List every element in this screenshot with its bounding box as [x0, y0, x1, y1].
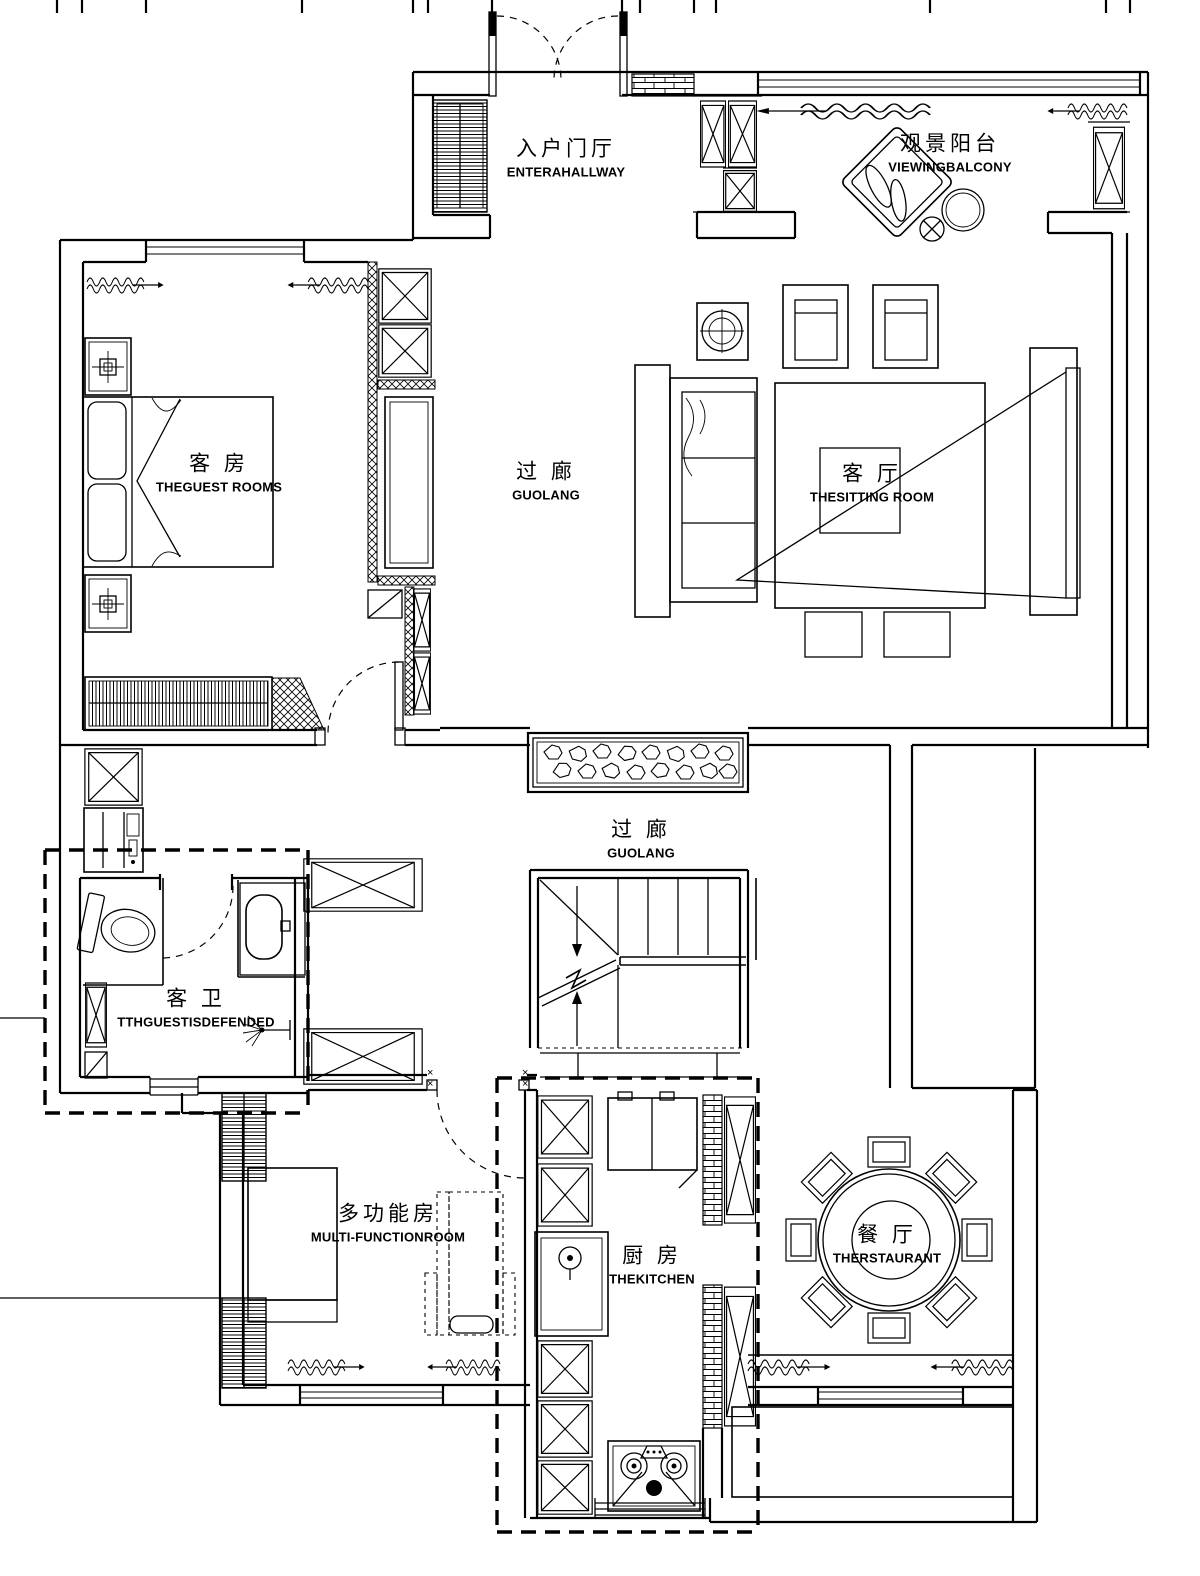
- guest-room-furniture: [83, 338, 405, 745]
- room-label-zh: 客 房: [156, 448, 282, 478]
- room-label-zh: 餐 厅: [833, 1219, 941, 1249]
- room-label-en: THESITTING ROOM: [810, 490, 934, 505]
- room-label-en: ENTERAHALLWAY: [507, 165, 625, 180]
- multi-room-door: [427, 1080, 529, 1178]
- shaft-and-vanity: [84, 749, 143, 872]
- guest-bathroom-fittings: [45, 749, 422, 1113]
- nightstand-top: [85, 338, 131, 395]
- cross-marks: × × × ×: [427, 1067, 528, 1090]
- room-label-zh: 过 廊: [607, 814, 675, 844]
- floor-plan-page: × × × × 入户门厅 ENTERAHALLWAY 观景阳台 VIEWINGB…: [0, 0, 1200, 1576]
- room-label-multi-function-room: 多功能房 MULTI-FUNCTIONROOM: [311, 1198, 465, 1245]
- room-label-zh: 入户门厅: [507, 133, 625, 163]
- room-label-zh: 过 廊: [512, 456, 580, 486]
- armchair: [873, 285, 938, 368]
- room-label-en: MULTI-FUNCTIONROOM: [311, 1230, 465, 1245]
- room-label-zh: 观景阳台: [888, 128, 1011, 158]
- room-label-zh: 厨 房: [609, 1240, 695, 1270]
- bay-window-platform: [732, 1407, 1013, 1497]
- dimension-ticks: [57, 0, 1130, 13]
- room-label-en: GUOLANG: [607, 846, 675, 861]
- wall-cabinet-column: [368, 269, 433, 714]
- room-label-zh: 客 厅: [810, 458, 934, 488]
- low-cabinet-slatted: [85, 677, 272, 730]
- room-label-zh: 客 卫: [117, 983, 274, 1013]
- staircase: [530, 870, 756, 1077]
- plant-box: [697, 303, 748, 360]
- armchair: [783, 285, 848, 368]
- room-label-en: TTHGUESTISDEFENDED: [117, 1015, 274, 1030]
- plant-symbol: [920, 217, 944, 241]
- tv-console: [1030, 348, 1077, 615]
- room-label-en: GUOLANG: [512, 488, 580, 503]
- room-label-corridor-upper: 过 廊 GUOLANG: [512, 456, 580, 503]
- entry-double-door: [489, 12, 627, 96]
- room-label-en: THEKITCHEN: [609, 1272, 695, 1287]
- room-label-kitchen: 厨 房 THEKITCHEN: [609, 1240, 695, 1287]
- tv-panel: [1066, 368, 1080, 598]
- ottoman: [884, 612, 950, 657]
- pebble-rug: [528, 733, 748, 792]
- side-table: [942, 189, 984, 231]
- room-label-sitting-room: 客 厅 THESITTING ROOM: [810, 458, 934, 505]
- toilet: [77, 893, 160, 965]
- walls: [0, 72, 1148, 1522]
- room-label-en: THEGUEST ROOMS: [156, 480, 282, 495]
- cross-mark: ×: [522, 1078, 528, 1090]
- fridge: [608, 1092, 697, 1188]
- room-label-guest-room: 客 房 THEGUEST ROOMS: [156, 448, 282, 495]
- floorplan-svg: × × × ×: [0, 0, 1200, 1576]
- guest-room-door: [315, 662, 405, 745]
- room-label-en: VIEWINGBALCONY: [888, 160, 1011, 175]
- gas-stove: [608, 1441, 700, 1511]
- room-label-entrance-hall: 入户门厅 ENTERAHALLWAY: [507, 133, 625, 180]
- ottoman: [805, 612, 862, 657]
- room-label-dining-room: 餐 厅 THERSTAURANT: [833, 1219, 941, 1266]
- room-label-en: THERSTAURANT: [833, 1251, 941, 1266]
- cross-mark: ×: [427, 1078, 433, 1090]
- room-label-corridor-lower: 过 廊 GUOLANG: [607, 814, 675, 861]
- nightstand-bottom: [85, 575, 131, 632]
- room-label-viewing-balcony: 观景阳台 VIEWINGBALCONY: [888, 128, 1011, 175]
- kitchen-sink: [535, 1232, 608, 1336]
- room-label-guest-bathroom: 客 卫 TTHGUESTISDEFENDED: [117, 983, 274, 1030]
- room-label-zh: 多功能房: [311, 1198, 465, 1228]
- dining-room-furniture: [732, 1137, 1013, 1497]
- bathroom-door-swing: [161, 886, 233, 958]
- wardrobe: [385, 397, 433, 568]
